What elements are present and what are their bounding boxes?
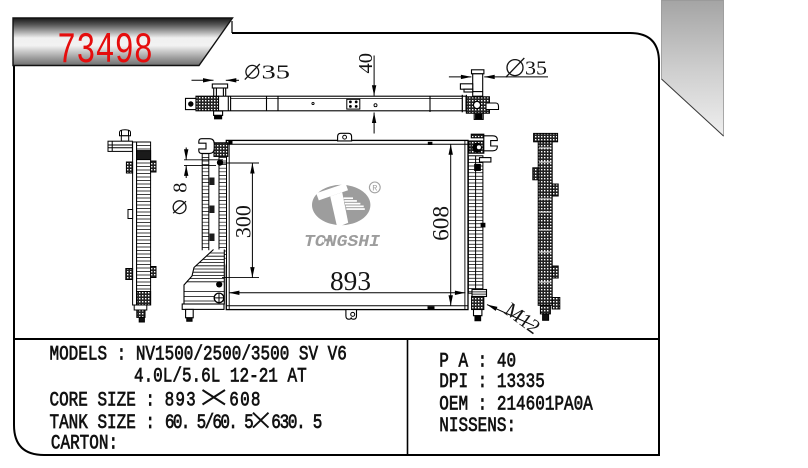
svg-text:R: R bbox=[372, 184, 377, 194]
svg-text:893: 893 bbox=[165, 389, 197, 412]
svg-text:4.0L/5.6L 12-21 AT: 4.0L/5.6L 12-21 AT bbox=[134, 365, 307, 388]
svg-text:NISSENS:: NISSENS: bbox=[439, 415, 516, 438]
svg-text:300: 300 bbox=[230, 205, 255, 238]
svg-text:630. 5: 630. 5 bbox=[271, 411, 321, 434]
svg-text:DPI : 13335: DPI : 13335 bbox=[439, 370, 545, 393]
svg-text:CORE SIZE :: CORE SIZE : bbox=[50, 389, 156, 412]
svg-text:MODELS : NV1500/2500/3500 SV V: MODELS : NV1500/2500/3500 SV V6 bbox=[50, 343, 347, 366]
svg-text:73498: 73498 bbox=[57, 26, 153, 76]
svg-text:TONGSHI: TONGSHI bbox=[304, 233, 381, 252]
svg-text:608: 608 bbox=[229, 389, 261, 412]
svg-text:40: 40 bbox=[355, 53, 377, 73]
svg-text:CARTON:: CARTON: bbox=[51, 432, 118, 455]
svg-text:8: 8 bbox=[170, 182, 192, 192]
svg-text:608: 608 bbox=[428, 206, 453, 241]
svg-text:893: 893 bbox=[330, 265, 371, 296]
svg-text:60. 5/60. 5: 60. 5/60. 5 bbox=[165, 411, 253, 434]
svg-text:OEM : 214601PA0A: OEM : 214601PA0A bbox=[439, 393, 593, 416]
svg-text:35: 35 bbox=[262, 62, 291, 84]
svg-text:35: 35 bbox=[525, 58, 547, 80]
